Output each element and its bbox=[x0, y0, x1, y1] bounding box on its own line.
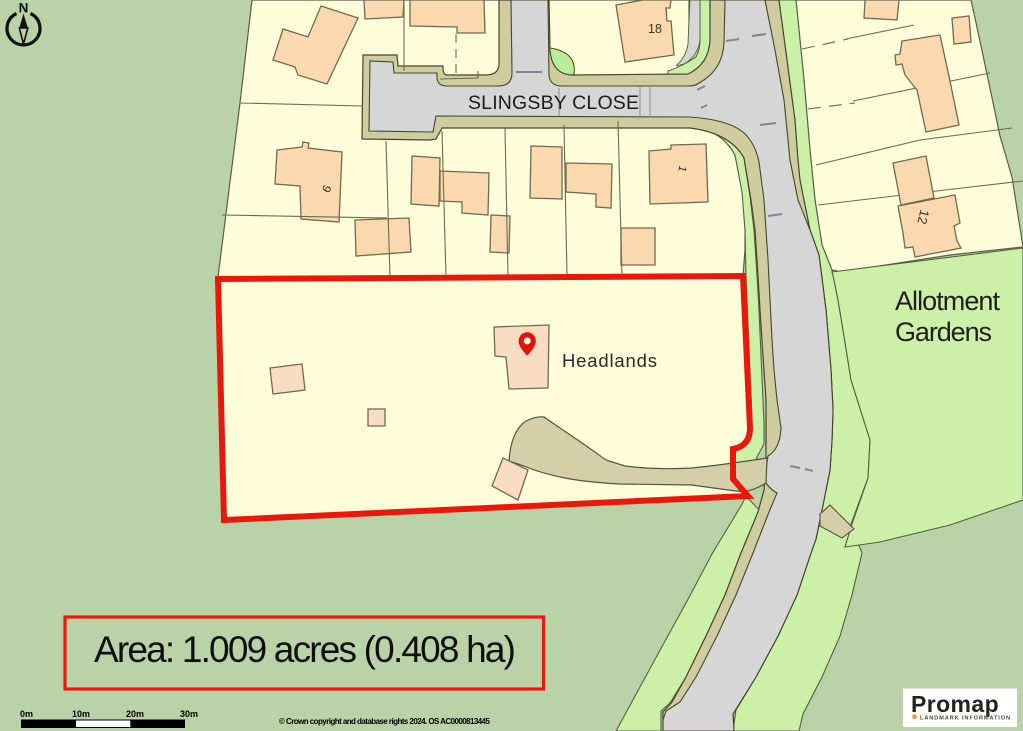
svg-text:Gardens: Gardens bbox=[895, 317, 992, 347]
svg-text:© Crown copyright and database: © Crown copyright and database rights 20… bbox=[279, 717, 491, 726]
svg-text:SLINGSBY CLOSE: SLINGSBY CLOSE bbox=[468, 92, 639, 114]
svg-text:Area: 1.009 acres (0.408 ha): Area: 1.009 acres (0.408 ha) bbox=[94, 629, 516, 670]
svg-text:Headlands: Headlands bbox=[562, 350, 657, 371]
svg-text:18: 18 bbox=[648, 22, 662, 36]
svg-text:20m: 20m bbox=[126, 709, 144, 719]
svg-text:10m: 10m bbox=[72, 709, 90, 719]
svg-text:LANDMARK INFORMATION: LANDMARK INFORMATION bbox=[920, 716, 1011, 722]
svg-text:Allotment: Allotment bbox=[895, 286, 1000, 316]
svg-text:0m: 0m bbox=[20, 709, 33, 719]
svg-text:Promap: Promap bbox=[911, 691, 999, 717]
svg-text:N: N bbox=[19, 1, 29, 16]
svg-text:30m: 30m bbox=[180, 709, 198, 719]
